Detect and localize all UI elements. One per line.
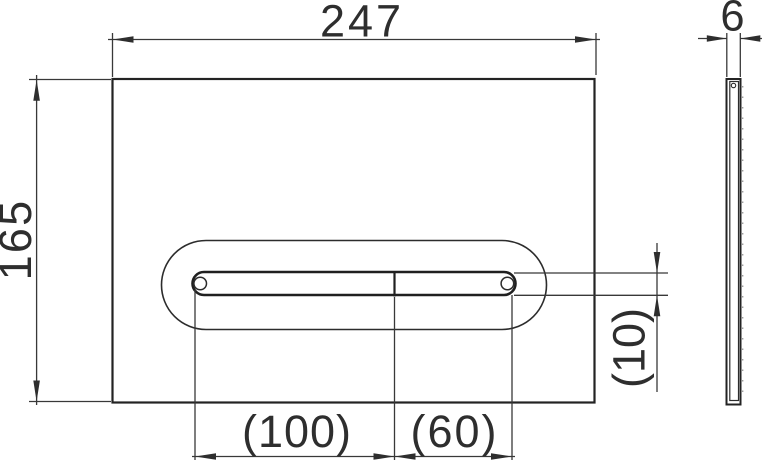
svg-text:(100): (100): [242, 406, 352, 457]
svg-text:165: 165: [0, 199, 41, 281]
svg-text:(60): (60): [410, 406, 498, 457]
svg-text:6: 6: [720, 0, 744, 40]
svg-text:247: 247: [320, 0, 404, 46]
svg-text:(10): (10): [604, 308, 655, 388]
